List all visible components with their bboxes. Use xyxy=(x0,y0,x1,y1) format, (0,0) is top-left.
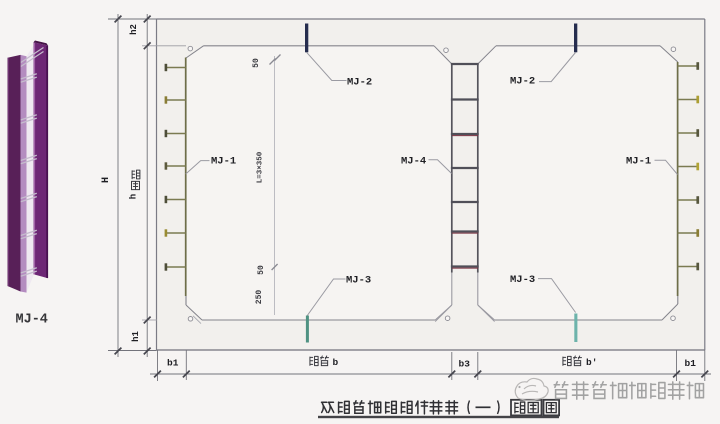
svg-text:MJ-3: MJ-3 xyxy=(346,275,371,287)
svg-text:MJ-4: MJ-4 xyxy=(401,156,426,168)
svg-text:MJ-2: MJ-2 xyxy=(510,75,535,87)
svg-text:250: 250 xyxy=(255,290,264,305)
svg-text:MJ-4: MJ-4 xyxy=(16,313,48,328)
svg-text:L=3×350: L=3×350 xyxy=(257,151,265,183)
svg-text:b': b' xyxy=(586,357,597,368)
svg-text:MJ-1: MJ-1 xyxy=(626,156,651,168)
svg-text:h1: h1 xyxy=(131,331,141,342)
svg-text:MJ-1: MJ-1 xyxy=(211,155,236,167)
svg-text:h: h xyxy=(129,194,139,199)
svg-text:50: 50 xyxy=(252,58,261,68)
svg-text:b: b xyxy=(333,357,339,368)
svg-text:50: 50 xyxy=(257,265,266,275)
svg-text:b1: b1 xyxy=(685,358,697,369)
svg-text:h2: h2 xyxy=(129,24,139,35)
svg-text:b1: b1 xyxy=(167,357,179,368)
svg-text:MJ-3: MJ-3 xyxy=(510,274,535,286)
svg-text:H: H xyxy=(101,177,112,183)
svg-text:b3: b3 xyxy=(459,359,471,370)
svg-text:MJ-2: MJ-2 xyxy=(347,76,372,88)
